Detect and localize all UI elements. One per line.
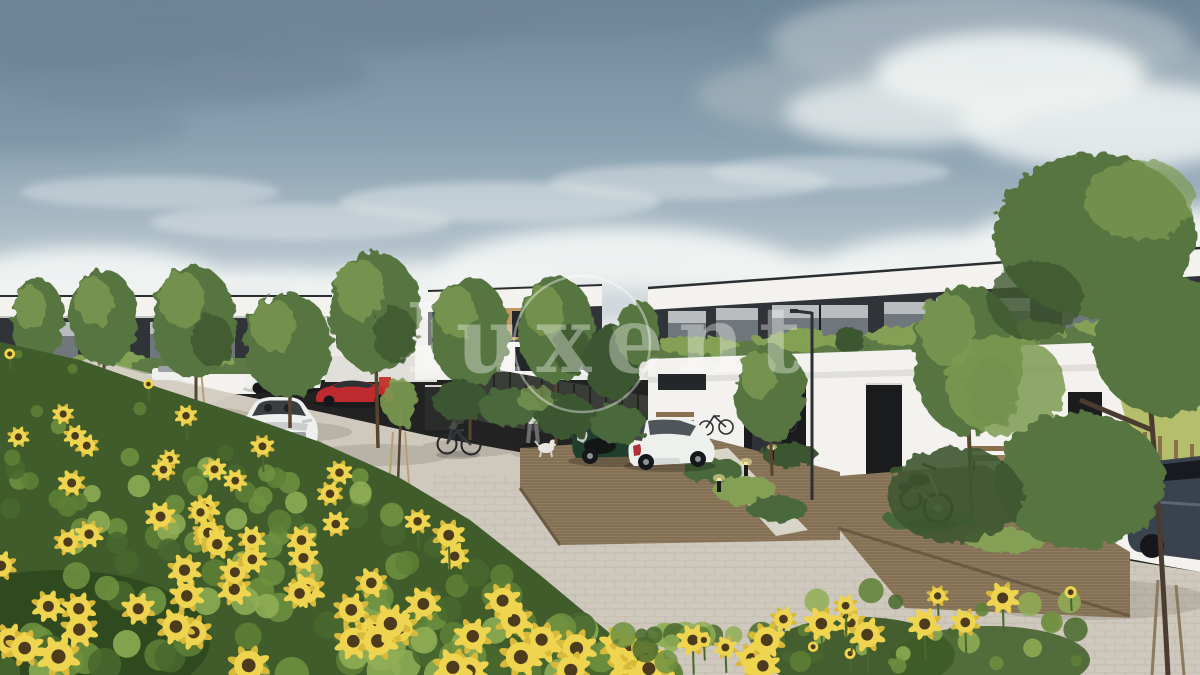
watermark: luxent: [407, 276, 816, 412]
render-image: luxent: [0, 0, 1200, 675]
watermark-text: luxent: [407, 286, 816, 394]
